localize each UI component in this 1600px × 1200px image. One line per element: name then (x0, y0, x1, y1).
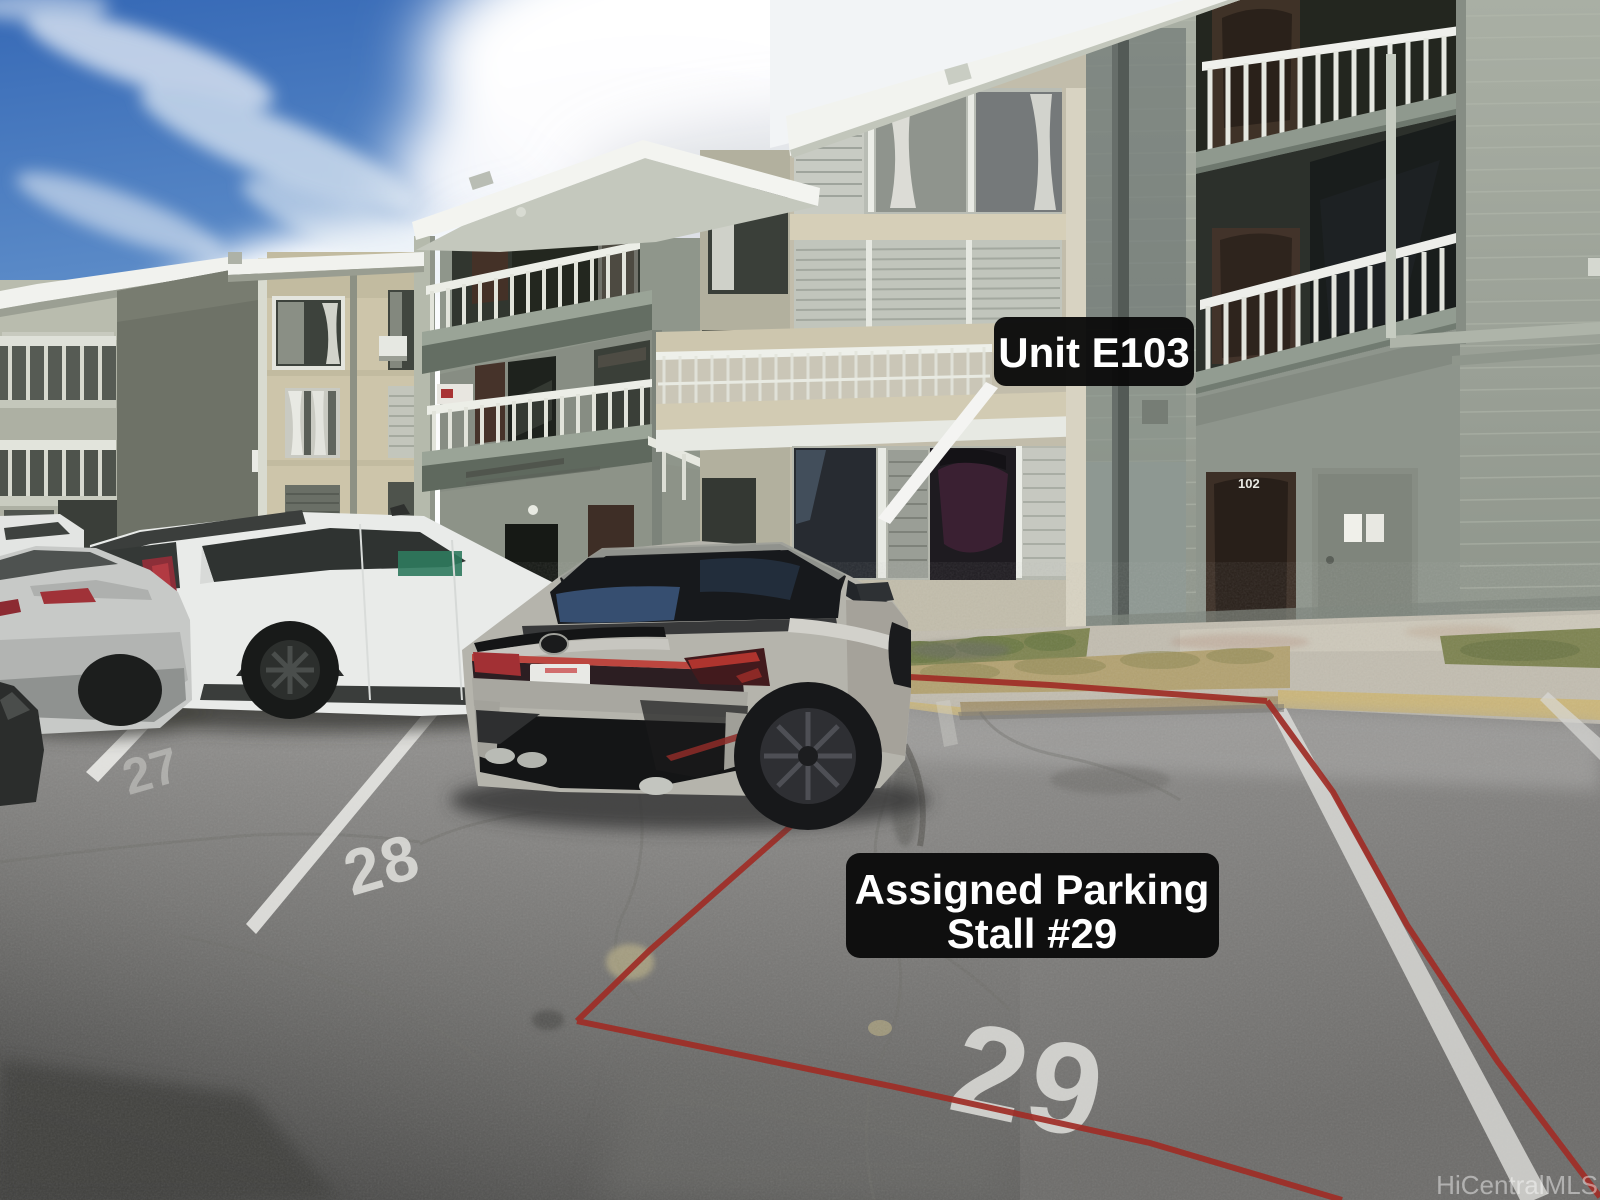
svg-text:Stall #29: Stall #29 (947, 910, 1117, 957)
svg-text:Unit E103: Unit E103 (998, 329, 1189, 376)
svg-text:102: 102 (1238, 476, 1260, 491)
svg-text:Assigned Parking: Assigned Parking (855, 866, 1210, 913)
svg-text:HiCentralMLS: HiCentralMLS (1436, 1170, 1598, 1200)
svg-text:29: 29 (940, 993, 1120, 1168)
